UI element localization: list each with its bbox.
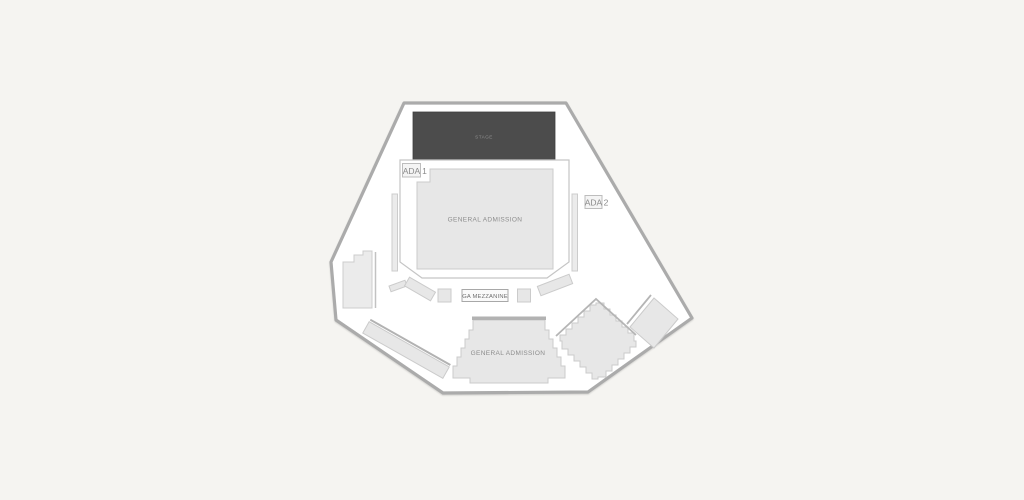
ga-mezzanine-section[interactable]: GA MEZZANINE — [462, 290, 508, 302]
ga-lower-label: GENERAL ADMISSION — [471, 350, 546, 357]
mezzanine-square-left[interactable] — [438, 289, 451, 302]
left-rail — [392, 194, 398, 271]
ga-floor-label: GENERAL ADMISSION — [448, 217, 523, 224]
venue-seating-map: STAGE GENERAL ADMISSION ADA 1 ADA 2 — [0, 0, 1024, 500]
ada-2-label: ADA — [585, 198, 603, 208]
mezzanine-square-right[interactable] — [518, 289, 531, 302]
ga-mezzanine-label: GA MEZZANINE — [462, 294, 508, 300]
stage-label: STAGE — [475, 135, 493, 140]
seating-map-canvas: STAGE GENERAL ADMISSION ADA 1 ADA 2 — [0, 0, 1024, 500]
ga-lower-stage-bar — [472, 317, 546, 321]
right-rail — [572, 194, 578, 271]
ada-1-section[interactable]: ADA 1 — [403, 164, 428, 178]
ada-2-number: 2 — [604, 198, 609, 208]
ada-2-section[interactable]: ADA 2 — [585, 196, 609, 209]
ada-1-number: 1 — [422, 166, 427, 176]
ada-1-label: ADA — [403, 166, 421, 176]
